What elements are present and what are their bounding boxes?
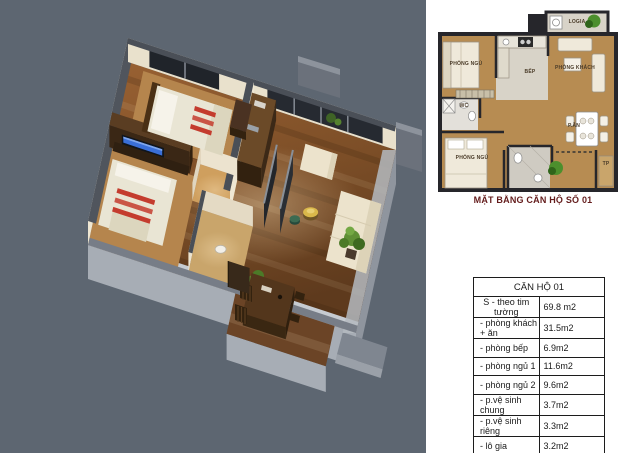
room-label: S - theo tim tường <box>474 297 540 318</box>
table-row: - p.vệ sinh chung 3.7m2 <box>474 394 605 415</box>
room-label: - phòng ngủ 1 <box>474 357 540 376</box>
stool <box>290 215 300 225</box>
table-row: - phòng khách + ăn 31.5m2 <box>474 318 605 339</box>
table-row: S - theo tim tường 69.8 m2 <box>474 297 605 318</box>
room-area: 9.6m2 <box>539 376 605 395</box>
room-label: - phòng khách + ăn <box>474 318 540 339</box>
screenshot-canvas: PHÒNG NGỦ BẾP PHÒNG KHÁCH LOGIA WC PHÒNG… <box>0 0 640 453</box>
room-label-loggia: LOGIA <box>569 19 586 25</box>
room-area: 6.9m2 <box>539 339 605 358</box>
room-area: 3.2m2 <box>539 436 605 453</box>
table-row: - phòng ngủ 2 9.6m2 <box>474 376 605 395</box>
room-label-kitchen: BẾP <box>525 69 536 75</box>
room-area: 3.7m2 <box>539 394 605 415</box>
room-area: 31.5m2 <box>539 318 605 339</box>
room-area: 11.6m2 <box>539 357 605 376</box>
room-area: 3.3m2 <box>539 415 605 436</box>
room-label-bedroom-1: PHÒNG NGỦ <box>450 61 483 67</box>
table-row: - p.vệ sinh riêng 3.3m2 <box>474 415 605 436</box>
room-label-living: PHÒNG KHÁCH <box>555 65 595 71</box>
room-label: - p.vệ sinh chung <box>474 394 540 415</box>
floor-plan-2d: PHÒNG NGỦ BẾP PHÒNG KHÁCH LOGIA WC PHÒNG… <box>434 6 620 194</box>
room-label-dining: P.ĂN <box>568 123 580 129</box>
area-table: CĂN HỘ 01 S - theo tim tường 69.8 m2 - p… <box>473 277 605 453</box>
room-label-bedroom-2: PHÒNG NGỦ <box>456 155 489 161</box>
table-row: - phòng bếp 6.9m2 <box>474 339 605 358</box>
room-label: - p.vệ sinh riêng <box>474 415 540 436</box>
room-label: - lô gia <box>474 436 540 453</box>
room-label: - phòng ngủ 2 <box>474 376 540 395</box>
room-label-wc: WC <box>460 103 469 109</box>
table-row: - lô gia 3.2m2 <box>474 436 605 453</box>
coffee-table <box>303 207 318 220</box>
shaft <box>528 14 546 34</box>
room-label-tp: TP <box>603 161 610 167</box>
floor-plan-2d-drawing <box>434 6 620 194</box>
room-area: 69.8 m2 <box>539 297 605 318</box>
table-row: - phòng ngủ 1 11.6m2 <box>474 357 605 376</box>
table-header-row: CĂN HỘ 01 <box>474 278 605 297</box>
info-panel: PHÒNG NGỦ BẾP PHÒNG KHÁCH LOGIA WC PHÒNG… <box>426 0 640 453</box>
floor-plan-3d-render <box>0 0 426 453</box>
toilet <box>215 245 226 253</box>
floor-plan-3d-panel <box>0 0 426 453</box>
table-title: CĂN HỘ 01 <box>474 278 605 297</box>
room-label: - phòng bếp <box>474 339 540 358</box>
plan-bed-2 <box>445 138 487 188</box>
plan-caption: MẶT BẰNG CĂN HỘ SỐ 01 <box>426 195 640 205</box>
